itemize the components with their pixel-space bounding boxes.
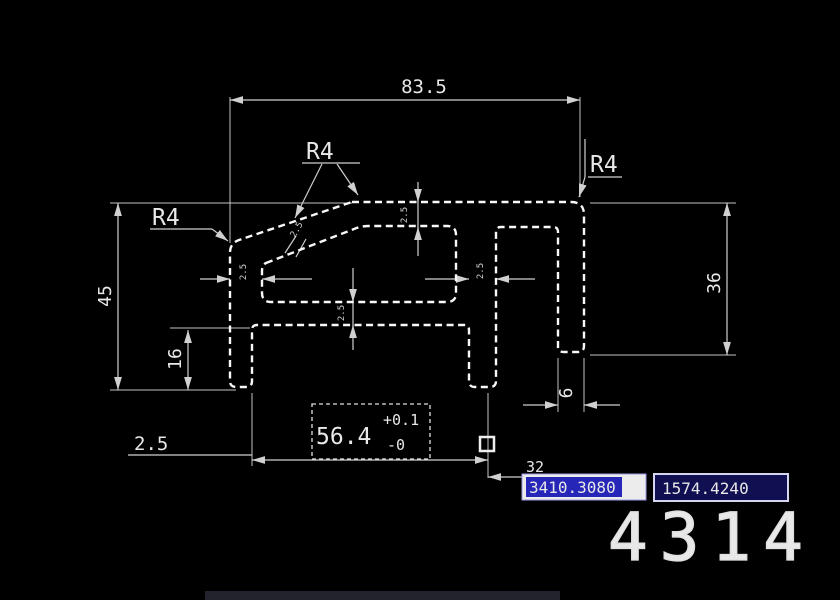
selected-dimension-56[interactable]: 56.4 +0.1 -0 <box>312 404 430 459</box>
radius-label-left: R4 <box>152 205 180 231</box>
thickness-bottom-wall: 2.5 <box>337 305 347 321</box>
radius-label-right: R4 <box>590 152 618 178</box>
radius-label-top: R4 <box>306 139 334 165</box>
profile-outline[interactable] <box>230 202 584 387</box>
dim-hidden-width: 32 <box>526 458 544 476</box>
dim-left-leg-height: 16 <box>165 348 186 370</box>
dim-right-leg-width: 6 <box>556 388 577 399</box>
profile-cavity <box>262 226 456 302</box>
bottom-strip <box>205 591 560 600</box>
coord-y-value[interactable]: 1574.4240 <box>662 479 749 498</box>
dynamic-input[interactable]: 3410.3080 1574.4240 <box>522 474 788 501</box>
dim-bottom-width: 56.4 <box>316 424 371 450</box>
dim-right-height: 36 <box>704 272 725 294</box>
dim-bottom-width-tol-plus: +0.1 <box>383 411 419 429</box>
thickness-middle-wall: 2.5 <box>476 263 486 279</box>
dim-top-width: 83.5 <box>401 76 447 98</box>
dim-left-height: 45 <box>95 285 116 307</box>
radius-leaders <box>150 139 622 257</box>
extension-lines <box>110 97 736 478</box>
dimension-lines <box>118 100 727 477</box>
coord-x-value[interactable]: 3410.3080 <box>529 478 616 497</box>
grip-square-icon[interactable] <box>480 437 494 451</box>
part-number: 4314 <box>608 499 815 576</box>
cad-canvas[interactable]: 83.5 R4 R4 R4 45 16 36 6 2.5 2.5 2.5 2.5… <box>0 0 840 600</box>
dim-bottom-width-tol-minus: -0 <box>387 436 405 454</box>
thickness-top-band: 2.5 <box>400 207 410 223</box>
drawing-viewport: 83.5 R4 R4 R4 45 16 36 6 2.5 2.5 2.5 2.5… <box>0 0 840 600</box>
thickness-left-wall: 2.5 <box>239 264 249 280</box>
dim-bottom-left-offset: 2.5 <box>134 433 168 455</box>
